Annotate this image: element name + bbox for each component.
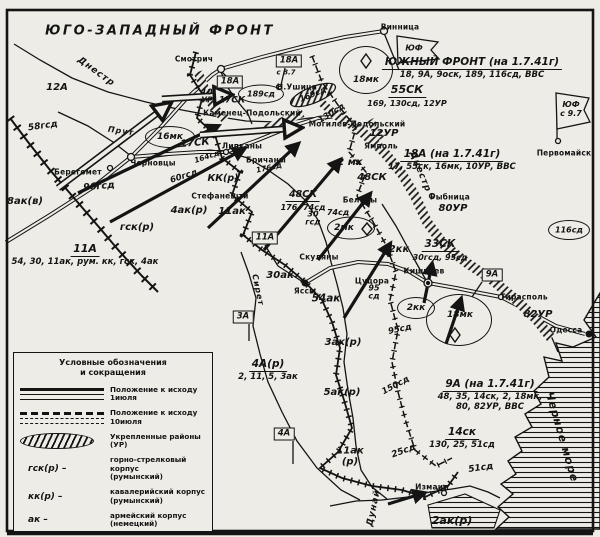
danube-delta xyxy=(428,494,500,528)
legend-title-line2: и сокращения xyxy=(14,368,212,378)
legend-item: ак –армейский корпус(немецкий) xyxy=(20,512,208,529)
legend-abbreviation: кк(р) – xyxy=(20,492,104,502)
legend-symbol-dashed xyxy=(20,412,104,424)
legend: Условные обозначения и сокращения Положе… xyxy=(13,352,213,532)
legend-abbreviation: ак – xyxy=(20,515,104,525)
legend-item: Укрепленные районы (УР) xyxy=(20,433,208,450)
pennant-flags xyxy=(397,36,590,129)
legend-abbreviation: гск(р) – xyxy=(20,464,104,474)
legend-item-text: Положение к исходу 1июля xyxy=(110,386,208,403)
river-dniester xyxy=(14,44,558,352)
legend-title: Условные обозначения и сокращения xyxy=(14,358,212,379)
black-sea xyxy=(428,293,600,529)
legend-abbreviation-text2: (румынский) xyxy=(110,473,208,481)
legend-symbol-ur xyxy=(20,433,104,449)
legend-abbreviation-text: горно-стрелковый корпус(румынский) xyxy=(110,456,208,481)
map-page: ЮГО-ЗАПАДНЫЙ ФРОНТ 12А58гсд8ак(в)96гсдгс… xyxy=(0,0,600,537)
legend-abbreviation-text: армейский корпус(немецкий) xyxy=(110,512,186,529)
legend-title-line1: Условные обозначения xyxy=(14,358,212,368)
legend-abbreviation-text2: (немецкий) xyxy=(110,520,186,528)
river-siret xyxy=(241,252,360,500)
legend-item: Положение к исходу 10июля xyxy=(20,409,208,426)
legend-item: гск(р) –горно-стрелковый корпус(румынски… xyxy=(20,456,208,481)
legend-item: кк(р) –кавалерийский корпус(румынский) xyxy=(20,488,208,505)
legend-abbreviation-text2: (румынский) xyxy=(110,497,205,505)
legend-symbol-solid xyxy=(20,388,104,400)
legend-item-text: Положение к исходу 10июля xyxy=(110,409,208,426)
legend-item: Положение к исходу 1июля xyxy=(20,386,208,403)
state-border xyxy=(10,118,158,292)
legend-item-text: Укрепленные районы (УР) xyxy=(110,433,208,450)
legend-abbreviation-text: кавалерийский корпус(румынский) xyxy=(110,488,205,505)
